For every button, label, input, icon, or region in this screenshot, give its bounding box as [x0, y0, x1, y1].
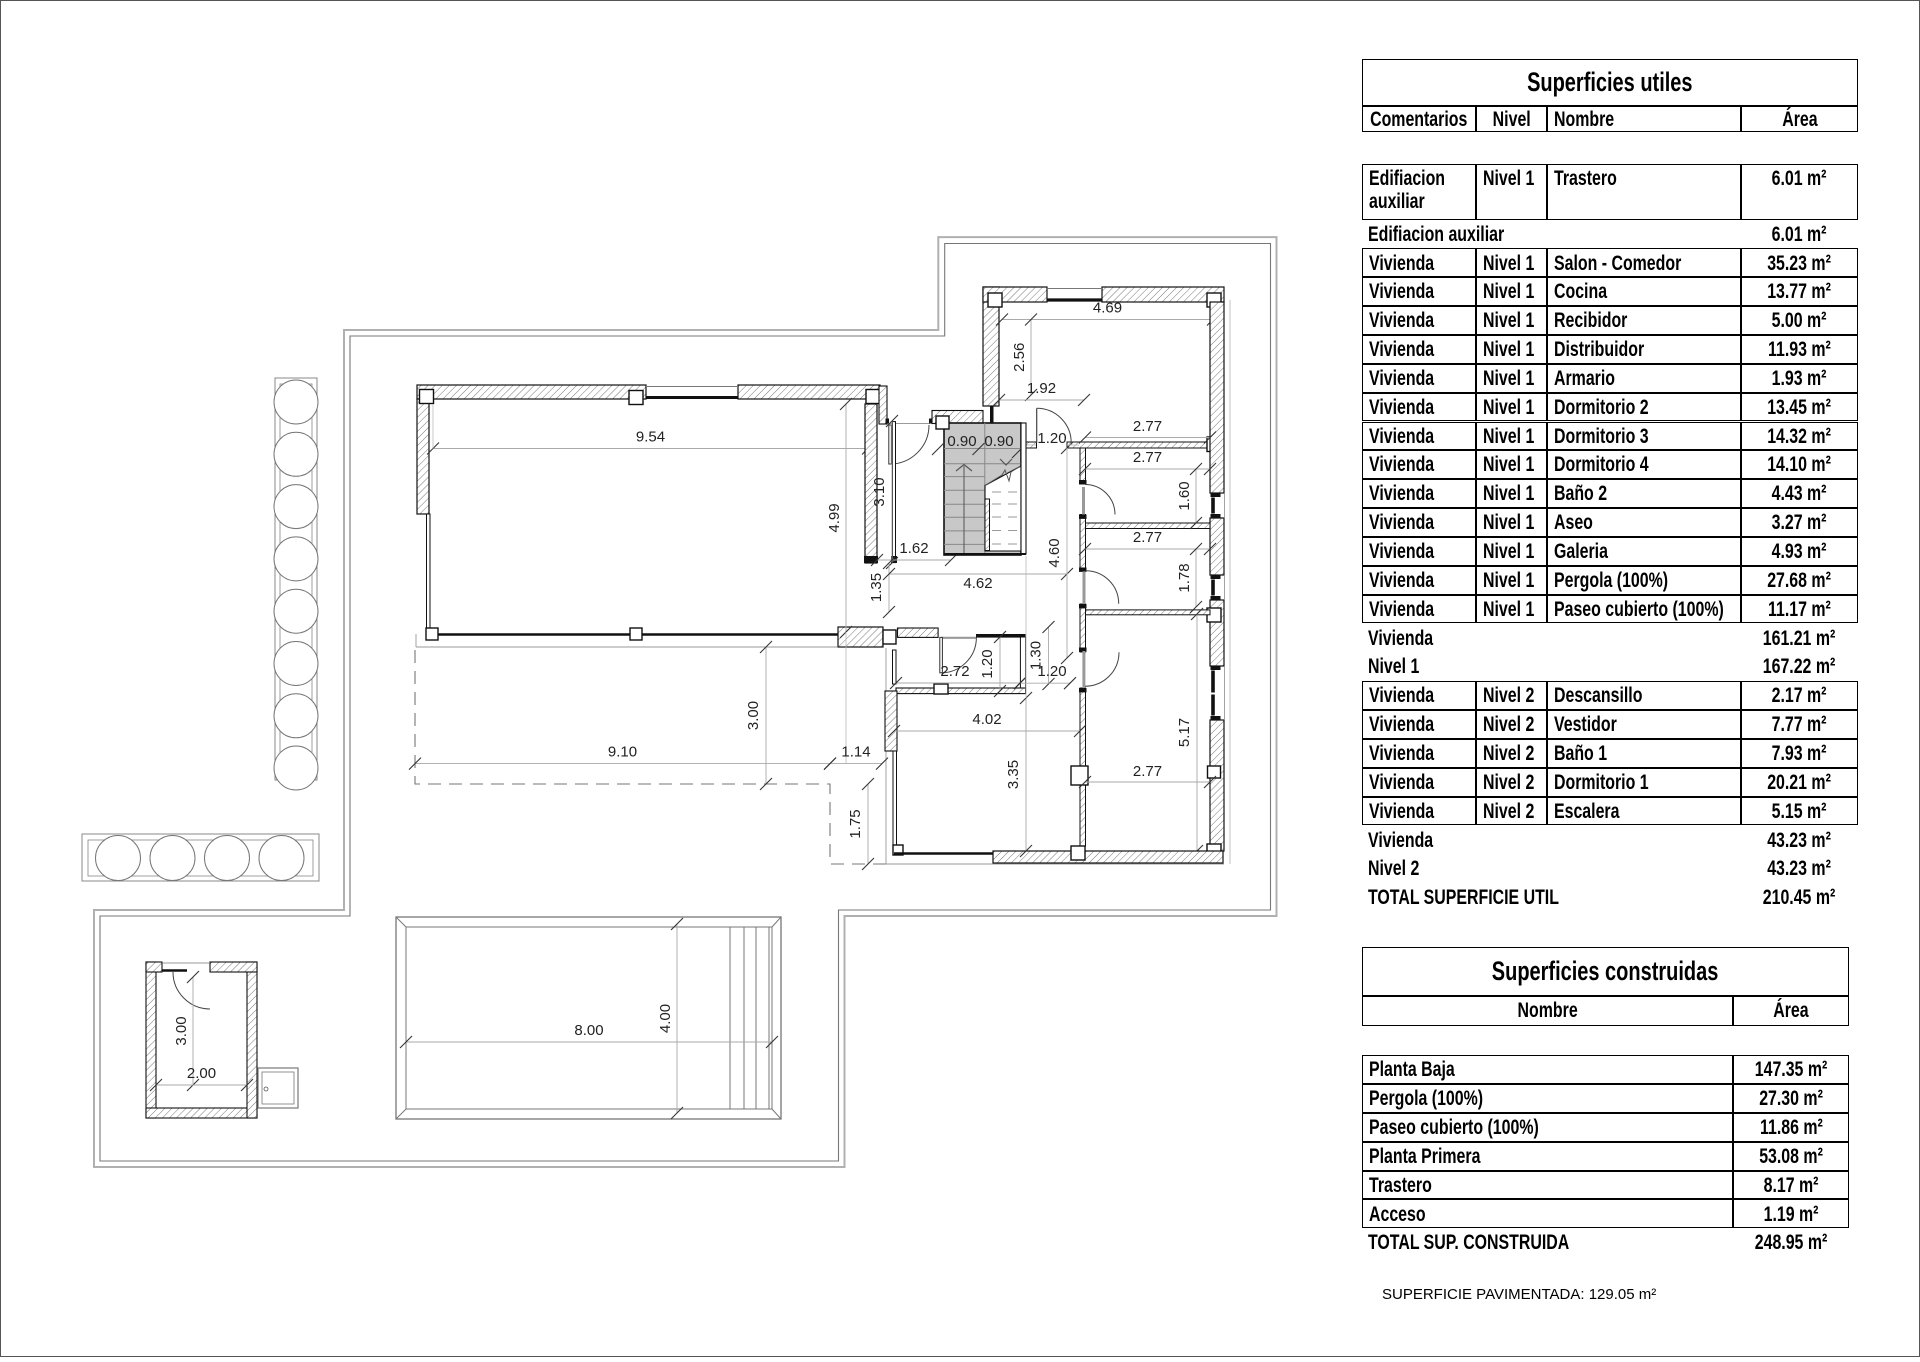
svg-text:4.60: 4.60 [1046, 538, 1063, 567]
svg-text:2.77: 2.77 [1133, 418, 1162, 435]
svg-text:1.20: 1.20 [979, 649, 996, 678]
svg-text:2.77: 2.77 [1133, 763, 1162, 780]
svg-text:2.77: 2.77 [1133, 449, 1162, 466]
svg-text:3.00: 3.00 [745, 701, 762, 730]
svg-text:1.20: 1.20 [1037, 430, 1066, 447]
svg-text:2.77: 2.77 [1133, 529, 1162, 546]
svg-text:1.60: 1.60 [1176, 481, 1193, 510]
svg-text:2.00: 2.00 [187, 1065, 216, 1082]
svg-text:1.75: 1.75 [847, 809, 864, 838]
svg-text:3.00: 3.00 [173, 1016, 190, 1045]
svg-text:1.14: 1.14 [841, 744, 870, 761]
svg-text:0.90: 0.90 [984, 433, 1013, 450]
svg-text:4.02: 4.02 [972, 711, 1001, 728]
svg-text:3.10: 3.10 [871, 477, 888, 506]
svg-text:9.54: 9.54 [636, 429, 665, 446]
svg-text:1.62: 1.62 [899, 540, 928, 557]
svg-text:1.35: 1.35 [868, 573, 885, 602]
svg-text:0.90: 0.90 [947, 433, 976, 450]
svg-text:4.69: 4.69 [1093, 300, 1122, 317]
svg-text:4.99: 4.99 [826, 503, 843, 532]
svg-text:3.35: 3.35 [1005, 760, 1022, 789]
svg-text:4.00: 4.00 [657, 1004, 674, 1033]
svg-text:1.78: 1.78 [1176, 563, 1193, 592]
svg-text:1.20: 1.20 [1037, 663, 1066, 680]
svg-text:4.62: 4.62 [963, 575, 992, 592]
svg-text:1.92: 1.92 [1027, 380, 1056, 397]
svg-text:8.00: 8.00 [574, 1022, 603, 1039]
svg-text:9.10: 9.10 [608, 744, 637, 761]
svg-text:2.56: 2.56 [1011, 343, 1028, 372]
svg-text:5.17: 5.17 [1176, 718, 1193, 747]
svg-text:2.72: 2.72 [940, 663, 969, 680]
